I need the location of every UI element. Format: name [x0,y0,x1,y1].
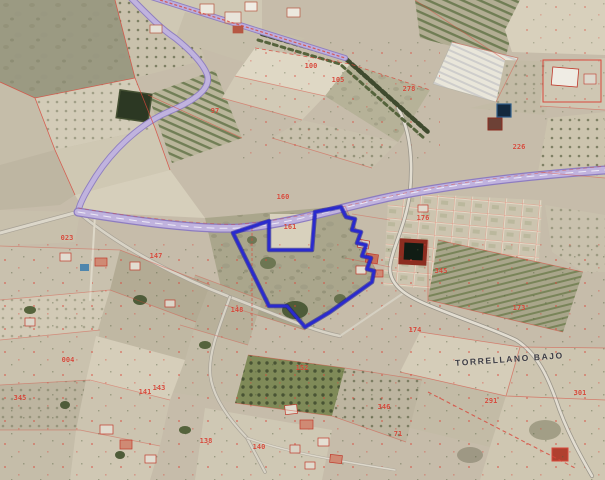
fields-layer [0,0,605,480]
aerial-imagery [0,0,605,480]
swimming-pool [497,104,511,117]
aerial-map-viewport[interactable]: 1001052789722617616016114702334514817317… [0,0,605,480]
